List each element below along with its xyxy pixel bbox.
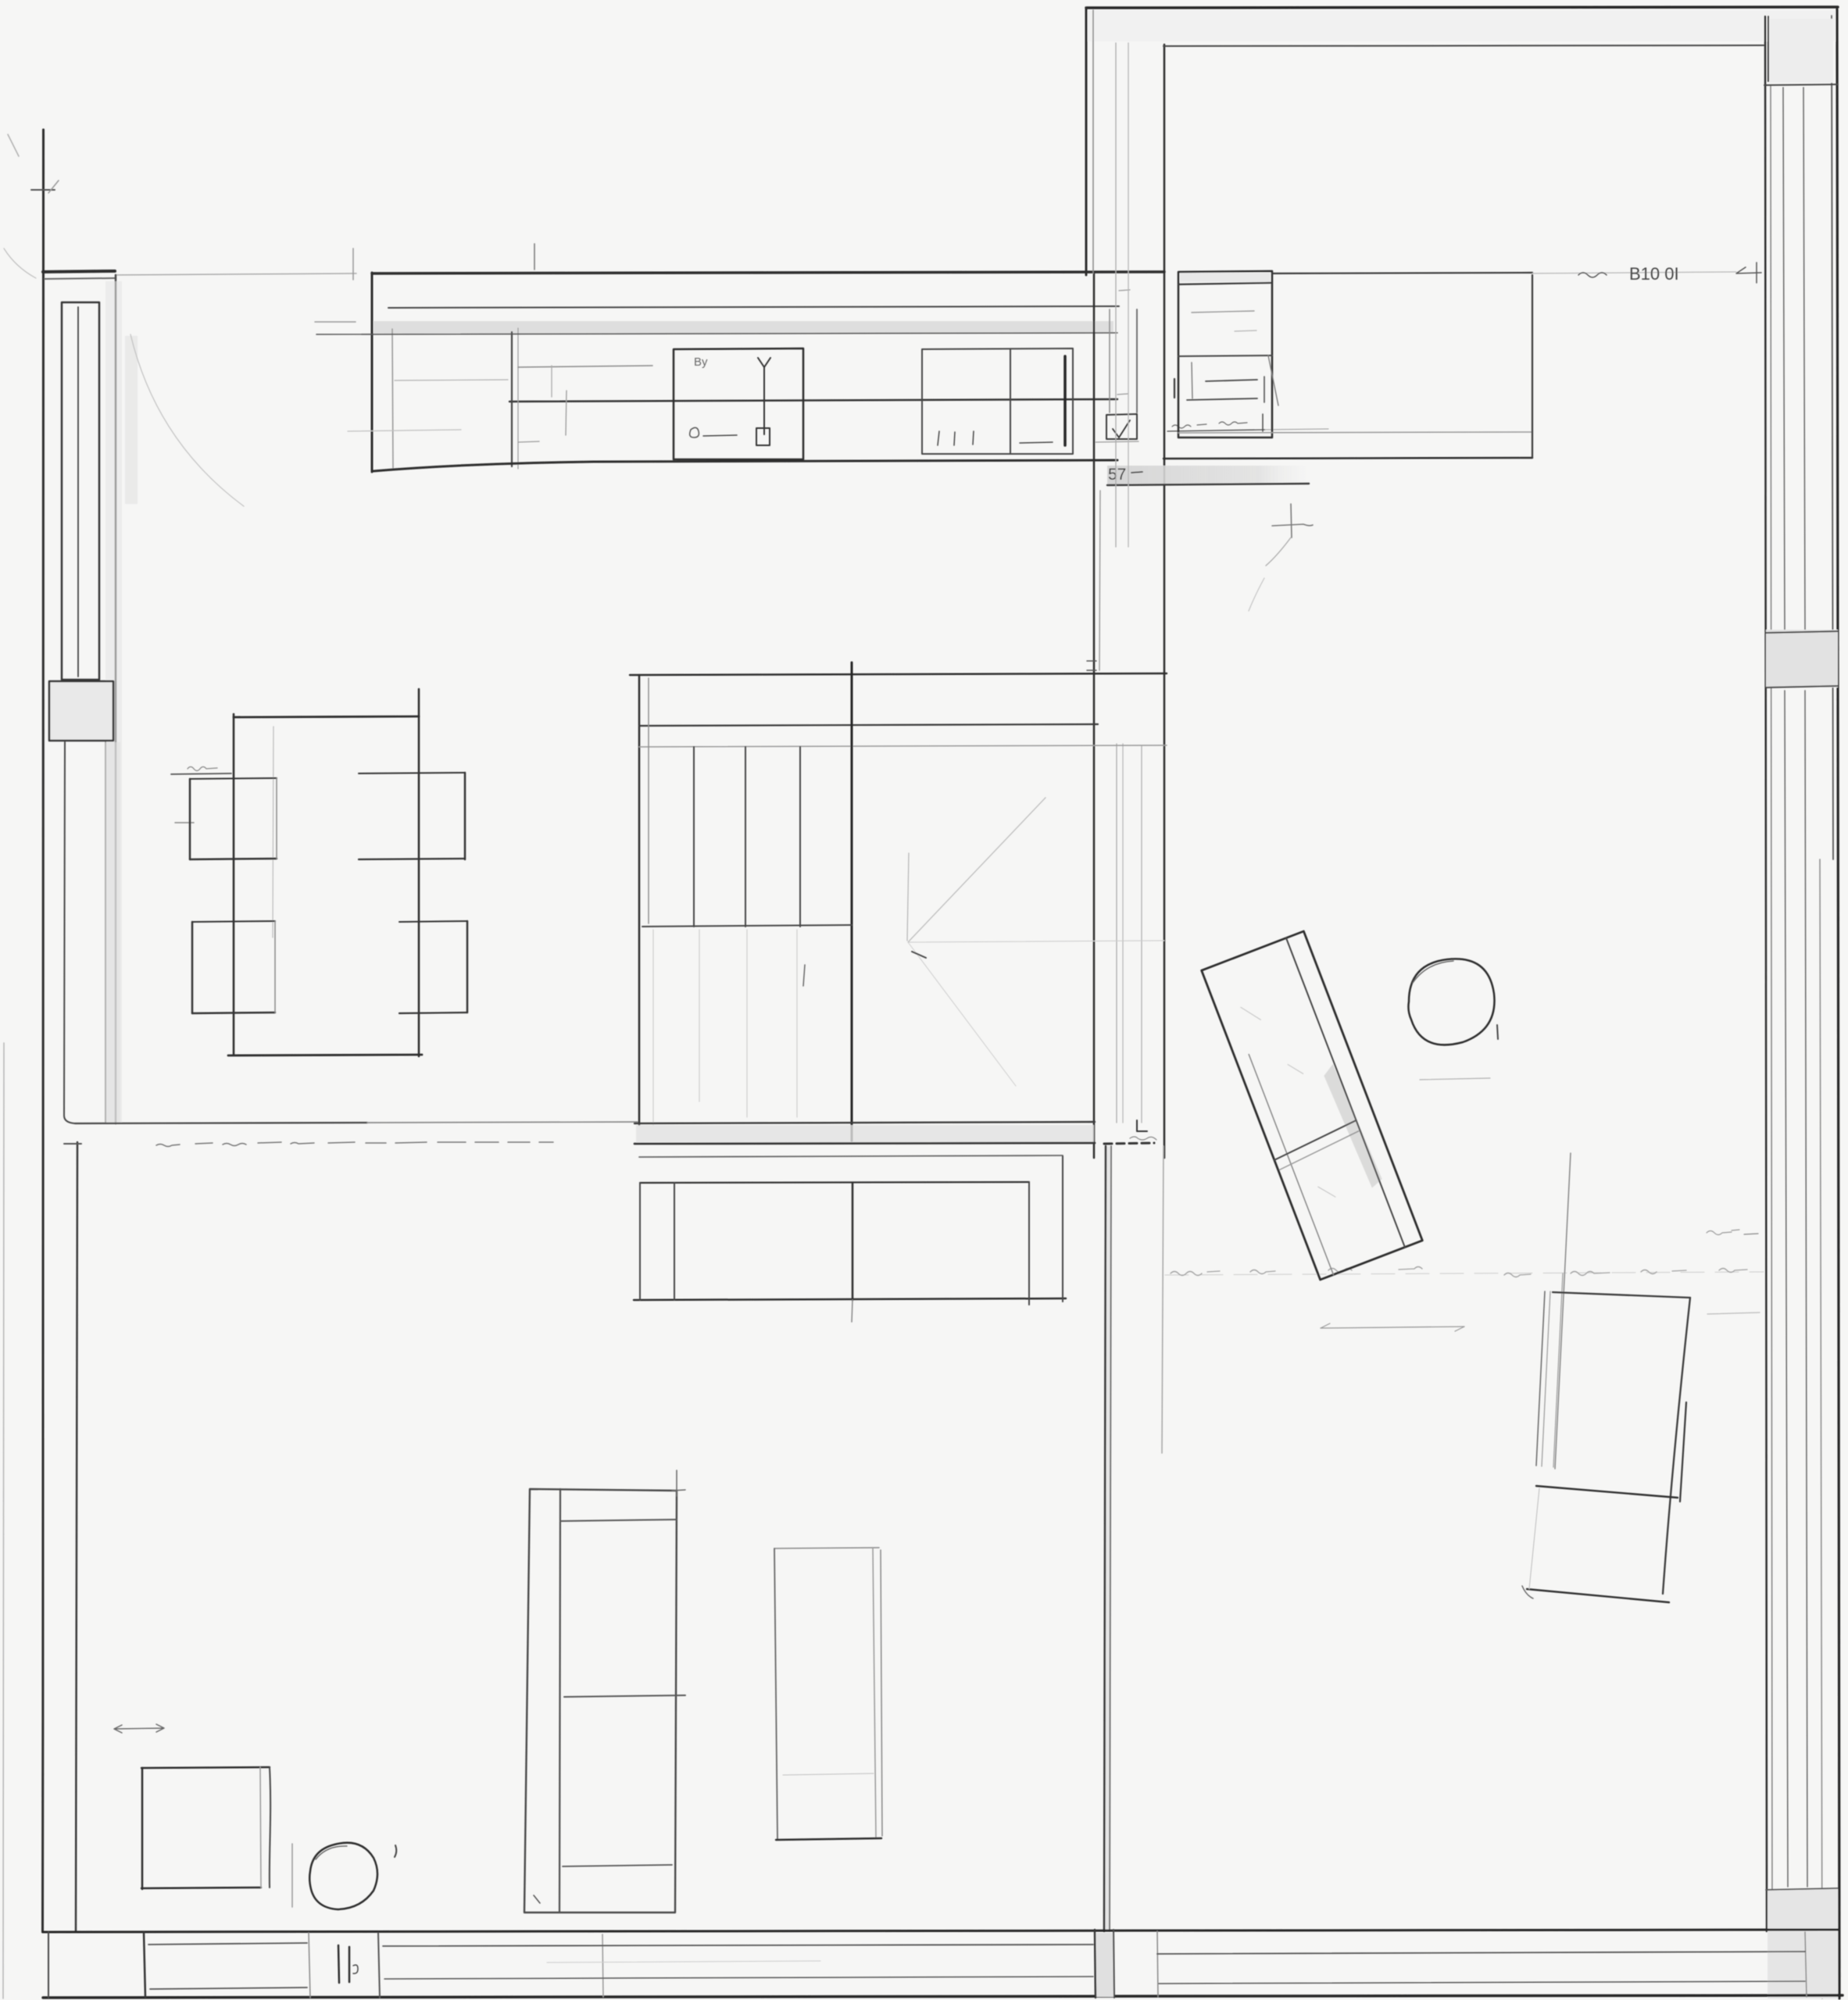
svg-text:By: By xyxy=(694,355,708,369)
svg-text:B10 0I: B10 0I xyxy=(1629,264,1679,284)
svg-text:57: 57 xyxy=(1108,466,1126,484)
